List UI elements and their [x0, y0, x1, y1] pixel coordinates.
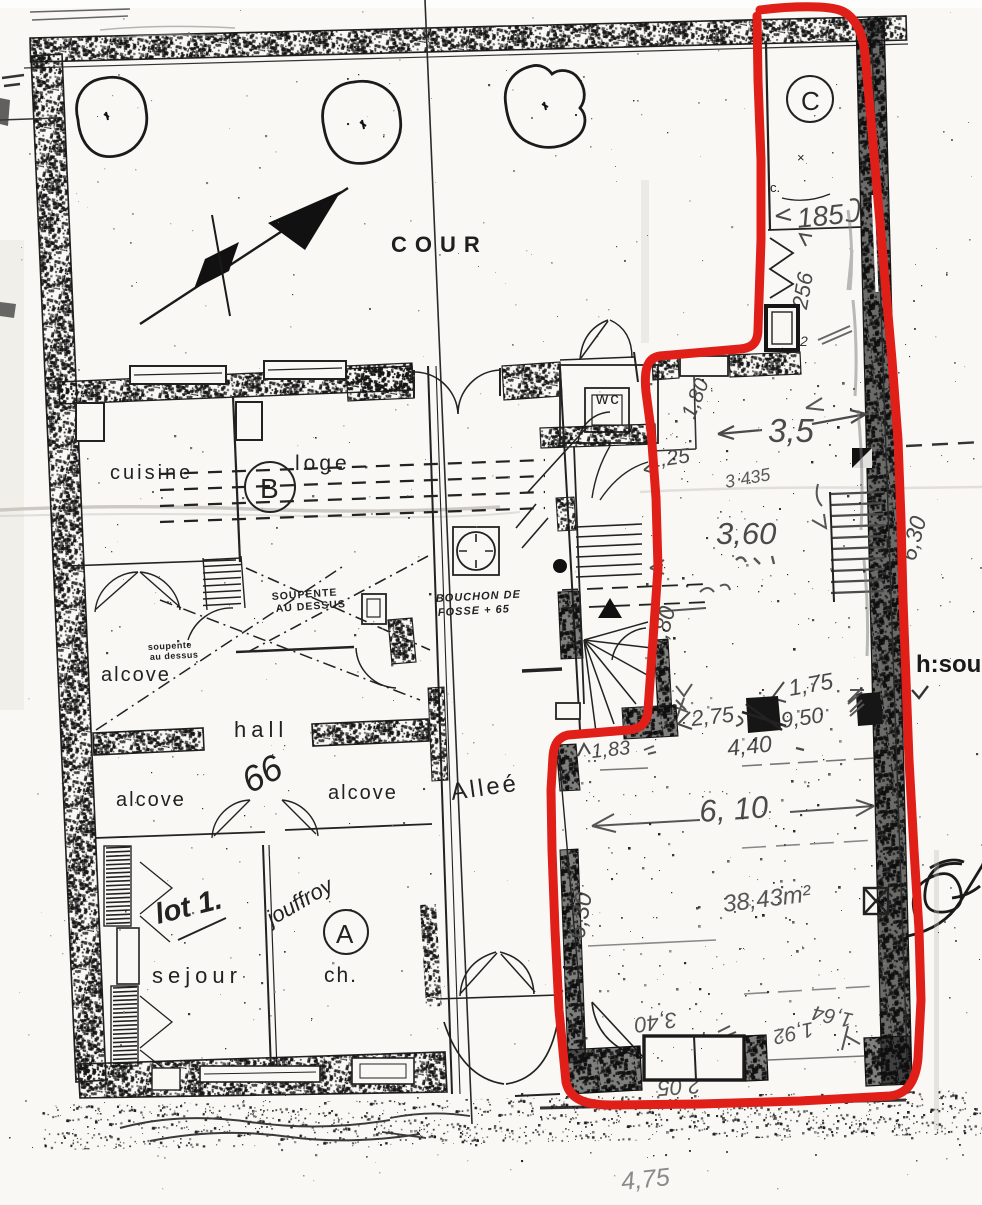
svg-text:alcove: alcove [328, 782, 398, 804]
svg-text:2,75: 2,75 [689, 702, 736, 732]
svg-text:3,60: 3,60 [716, 516, 776, 551]
svg-text:h:sous: h:sous [916, 651, 982, 678]
svg-text:loge: loge [295, 452, 351, 475]
svg-text:COUR: COUR [391, 232, 488, 257]
svg-text:A: A [336, 919, 354, 949]
svg-text:1,83: 1,83 [590, 737, 631, 763]
svg-text:cuisine: cuisine [110, 462, 193, 484]
svg-text:3,5: 3,5 [768, 412, 815, 449]
svg-text:×: × [797, 150, 805, 165]
svg-text:C: C [801, 86, 820, 116]
svg-text:hall: hall [234, 717, 288, 742]
svg-text:4,75: 4,75 [620, 1163, 671, 1196]
svg-text:185: 185 [795, 198, 845, 234]
svg-text:alcove: alcove [116, 789, 186, 811]
svg-text:sejour: sejour [152, 963, 242, 988]
svg-text:6, 10: 6, 10 [698, 789, 769, 829]
svg-text:c.: c. [770, 180, 780, 195]
svg-text:B: B [260, 473, 279, 504]
svg-text:4,40: 4,40 [726, 730, 773, 761]
svg-text:wc: wc [595, 389, 621, 408]
svg-text:ch.: ch. [324, 964, 358, 987]
svg-text:2: 2 [799, 333, 808, 349]
